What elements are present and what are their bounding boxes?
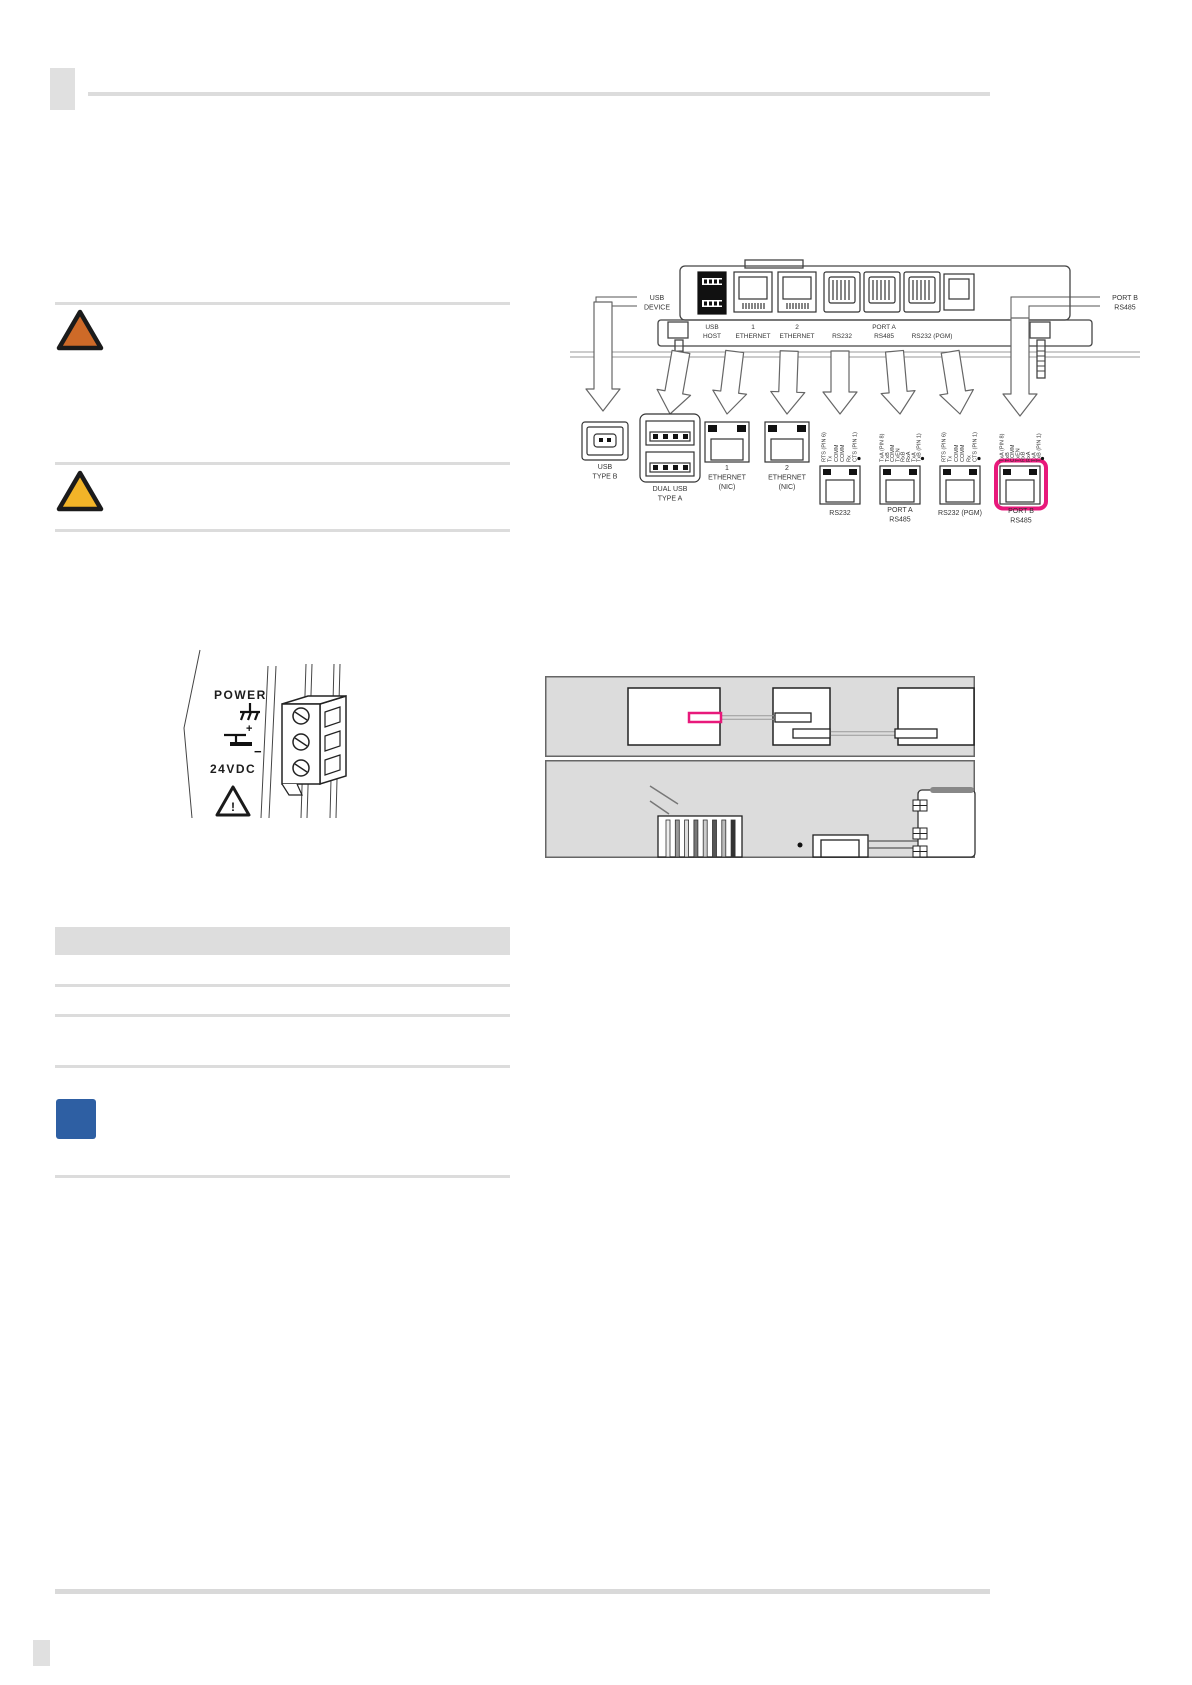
svg-text:Rx: Rx — [966, 455, 972, 462]
port-stub — [775, 713, 811, 722]
svg-text:RTS (PIN 6): RTS (PIN 6) — [822, 432, 828, 462]
ethernet2-nic-label: 2ETHERNET(NIC) — [768, 465, 806, 491]
pin-labels-rs232: RTS (PIN 6)TxCOMMCOMMRxCTS (PIN 1) — [822, 432, 859, 462]
svg-text:Rx: Rx — [846, 455, 852, 462]
rj45-plug — [658, 816, 742, 857]
pin1-dot — [857, 457, 860, 460]
usb-type-b-connector — [582, 422, 628, 460]
terminal-block — [282, 696, 346, 795]
power-connector-diagram: POWER + − 24VDC ! — [168, 608, 348, 820]
rs232-label: RS232 — [829, 510, 851, 517]
manual-page: POWER + − 24VDC ! — [0, 0, 1192, 1685]
section-rule-3 — [55, 529, 510, 532]
section-rule-1 — [55, 302, 510, 305]
note-icon-square — [56, 1099, 96, 1139]
ethernet1-port — [734, 272, 772, 312]
pin-labels-rs232-pgm: RTS (PIN 6)TxCOMMCOMMRxCTS (PIN 1) — [942, 432, 979, 462]
port-a-rs485-port — [864, 272, 900, 312]
port-a-label: PORT ARS485 — [887, 507, 913, 523]
bullet-dot — [798, 843, 803, 848]
pin1-dot — [921, 457, 924, 460]
voltage-label: 24VDC — [210, 762, 256, 776]
strip-port-a-label: PORT ARS485 — [872, 324, 896, 340]
warning-triangle-icon — [56, 308, 104, 352]
port-b-leader — [1011, 297, 1100, 318]
bezel-edge-line — [184, 650, 200, 818]
svg-text:COMM: COMM — [960, 444, 966, 462]
rs232-jack — [820, 466, 860, 504]
port-a-rs485-jack — [880, 466, 920, 504]
highlighted-port-stub — [689, 713, 721, 722]
caution-triangle-shape — [59, 473, 101, 509]
strip-ethernet1-label: 1ETHERNET — [735, 324, 770, 340]
header-rule — [88, 92, 990, 96]
minus-sign: − — [254, 744, 262, 759]
ethernet2-port — [778, 272, 816, 312]
usb-device-label: USBDEVICE — [644, 295, 670, 311]
usb-type-b-label: USBTYPE B — [593, 464, 618, 480]
section-rule-2 — [55, 462, 510, 465]
svg-text:COMM: COMM — [840, 444, 846, 462]
warning-triangle-shape — [59, 312, 101, 348]
controller-device — [913, 787, 975, 857]
daisy-chain-diagram — [545, 676, 975, 757]
rj45-jack-front — [813, 835, 868, 857]
rs232-pgm-label: RS232 (PGM) — [938, 510, 982, 517]
ground-icon — [240, 703, 260, 720]
strip-usb-host-label: USBHOST — [703, 324, 721, 340]
caution-triangle-icon — [56, 469, 104, 513]
mounting-screw-right — [1030, 322, 1050, 378]
table-row-rule-1 — [55, 984, 510, 987]
pin-labels-port-a: TxA (PIN 8)TxBCOMMTxENRxBRxATxATxB (PIN … — [880, 433, 923, 462]
svg-text:RTS (PIN 6): RTS (PIN 6) — [942, 432, 948, 462]
ethernet1-nic-label: 1ETHERNET(NIC) — [708, 465, 746, 491]
strip-ethernet2-label: 2ETHERNET — [779, 324, 814, 340]
ethernet2-jack — [765, 422, 809, 462]
alert-exclamation: ! — [231, 800, 235, 814]
ethernet1-jack — [705, 422, 749, 462]
svg-text:Tx: Tx — [828, 456, 834, 462]
plus-sign: + — [246, 723, 252, 735]
page-number-box — [50, 68, 75, 110]
svg-text:CTS (PIN 1): CTS (PIN 1) — [853, 432, 859, 462]
section-rule-4 — [55, 1175, 510, 1178]
port-stub — [793, 729, 830, 738]
svg-text:CTS (PIN 1): CTS (PIN 1) — [973, 432, 979, 462]
pin-labels-port-b: TxA (PIN 8)TxBCOMMTxENRxBRxATxATxB (PIN … — [1000, 433, 1043, 462]
note-icon — [55, 1098, 97, 1140]
usb-host-port — [698, 272, 726, 314]
table-header-bar — [55, 927, 510, 955]
panel-cross-section — [570, 352, 1140, 357]
rs232-pgm-jack — [940, 466, 980, 504]
pin1-dot — [977, 457, 980, 460]
pin1-dot — [1041, 457, 1044, 460]
port-b-rs485-jack — [1000, 466, 1040, 504]
cable-wiring-diagram — [545, 760, 975, 858]
port-b-label: PORT BRS485 — [1008, 508, 1034, 524]
callout-arrows — [586, 302, 1037, 417]
svg-text:Tx: Tx — [948, 456, 954, 462]
rear-panel-port-diagram: USBHOST 1ETHERNET 2ETHERNET RS232 PORT A… — [540, 256, 1160, 528]
panel-background — [546, 761, 975, 858]
footer-rule — [55, 1589, 990, 1594]
table-row-rule-3 — [55, 1065, 510, 1068]
dual-usb-label: DUAL USBTYPE A — [653, 486, 688, 502]
strip-rs232-label: RS232 — [832, 333, 852, 340]
table-row-rule-2 — [55, 1014, 510, 1017]
port-b-top-label: PORT BRS485 — [1112, 295, 1138, 311]
footer-page-box — [33, 1640, 50, 1666]
rs232-port — [824, 272, 860, 312]
rs232-pgm-port — [904, 272, 940, 312]
port-stub — [895, 729, 937, 738]
alert-triangle-icon: ! — [217, 787, 249, 815]
dual-usb-type-a-connector — [640, 414, 700, 482]
svg-text:COMM: COMM — [834, 444, 840, 462]
svg-text:COMM: COMM — [954, 444, 960, 462]
dc-polarity-icon: + − — [224, 723, 262, 759]
power-label: POWER — [214, 688, 267, 702]
port-b-rs485-port — [944, 274, 974, 310]
strip-rs232-pgm-label: RS232 (PGM) — [912, 333, 953, 340]
